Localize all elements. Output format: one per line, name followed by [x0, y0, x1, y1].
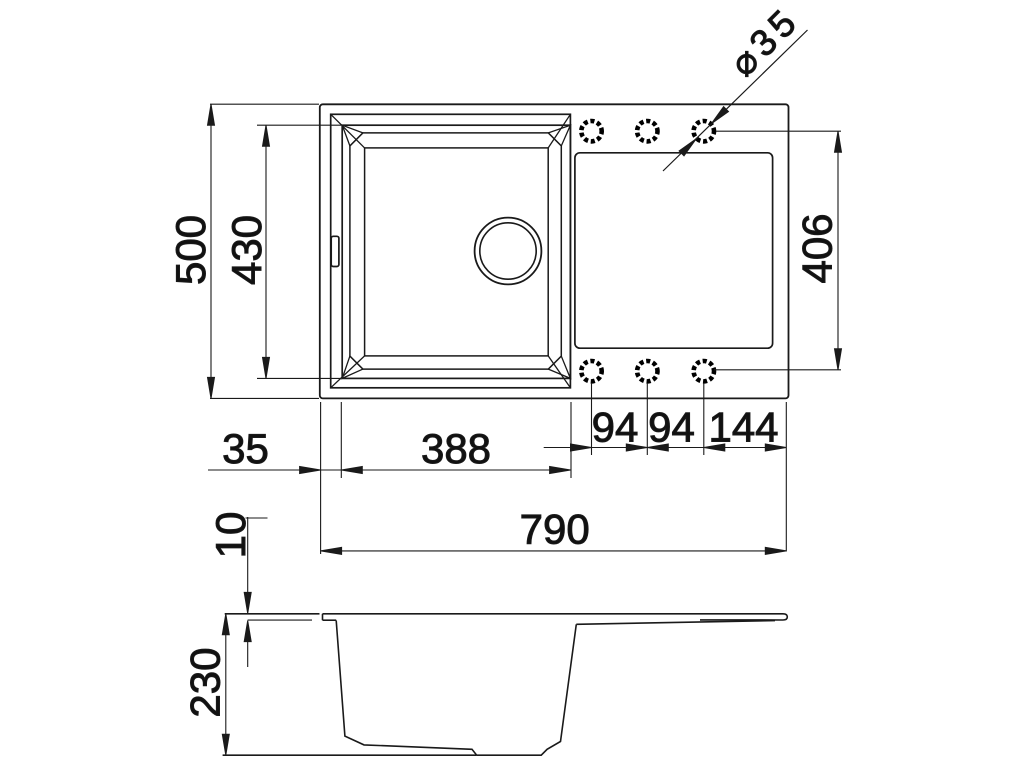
- svg-text:35: 35: [222, 425, 269, 472]
- svg-text:790: 790: [520, 506, 590, 553]
- svg-text:406: 406: [794, 213, 841, 283]
- svg-text:388: 388: [421, 425, 491, 472]
- svg-text:10: 10: [207, 512, 254, 559]
- svg-text:144: 144: [708, 404, 778, 451]
- svg-text:230: 230: [182, 648, 229, 718]
- svg-text:500: 500: [167, 215, 214, 285]
- svg-text:430: 430: [223, 215, 270, 285]
- svg-text:94: 94: [648, 404, 695, 451]
- svg-text:94: 94: [592, 404, 639, 451]
